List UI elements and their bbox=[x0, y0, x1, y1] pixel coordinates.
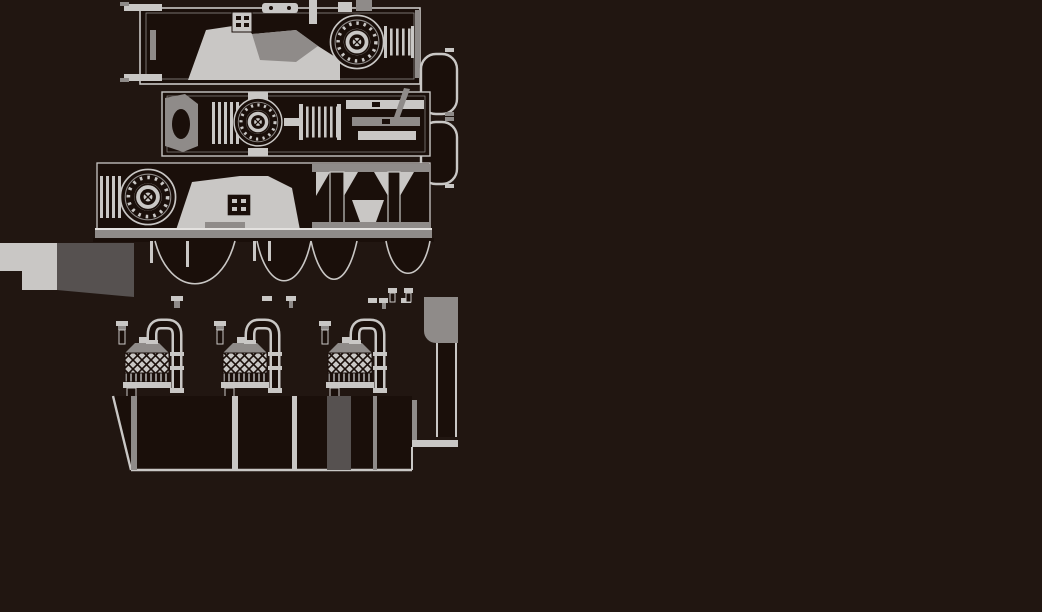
blower-top-view bbox=[330, 15, 383, 68]
terminal-box bbox=[232, 12, 252, 32]
support-structure bbox=[113, 396, 412, 470]
plan-view-b bbox=[162, 88, 430, 156]
plan-view-a bbox=[120, 0, 432, 90]
sight-window bbox=[227, 194, 251, 216]
front-elevation bbox=[93, 163, 434, 242]
coupling-ribs-b bbox=[299, 104, 341, 140]
blower-plan-b bbox=[234, 98, 282, 146]
coupling-ribs-a bbox=[384, 26, 414, 58]
drawing-canvas bbox=[0, 0, 1042, 612]
assembly-drawing bbox=[0, 0, 1042, 612]
nozzle-bottom bbox=[248, 148, 268, 156]
right-rail bbox=[415, 10, 420, 78]
background bbox=[0, 0, 1042, 612]
blower-front-view bbox=[120, 169, 175, 224]
base-channel bbox=[93, 228, 434, 242]
